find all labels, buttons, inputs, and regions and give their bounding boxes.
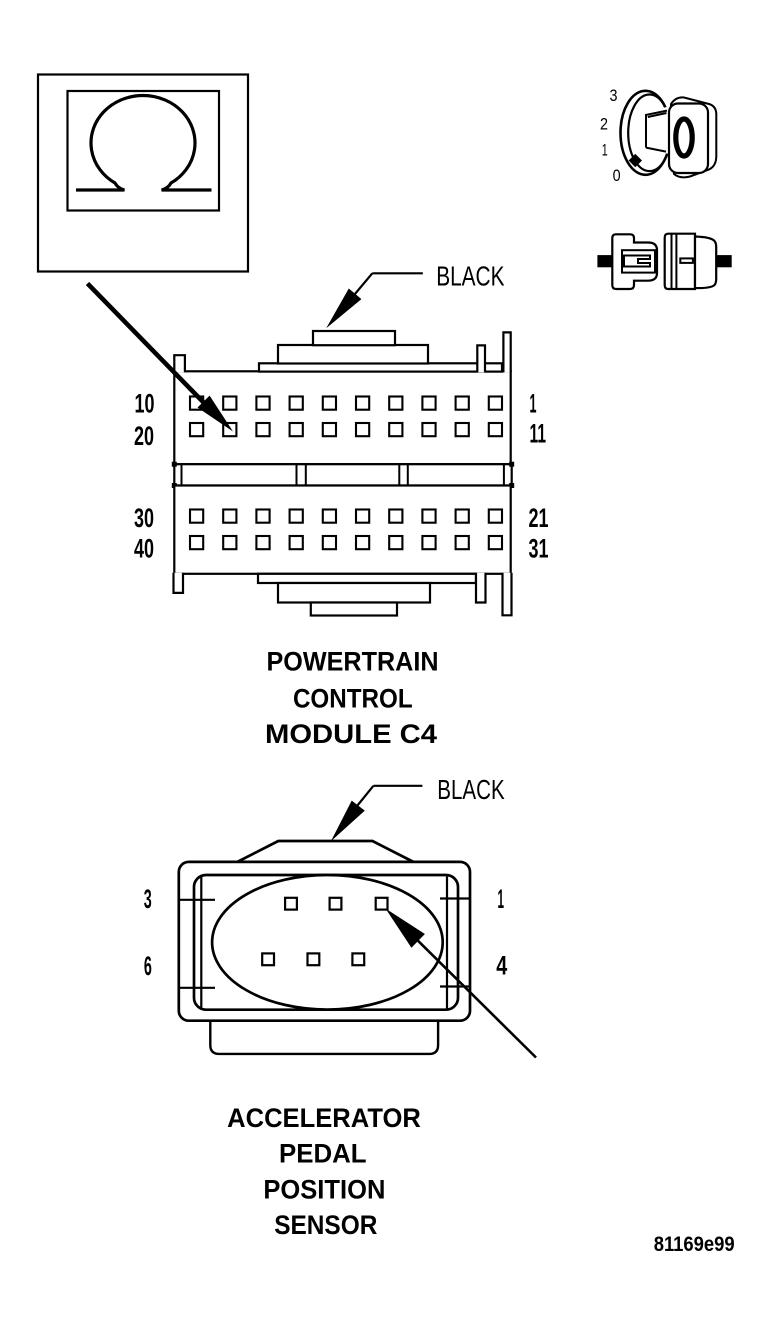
svg-text:11: 11 — [530, 419, 547, 449]
svg-text:40: 40 — [134, 534, 154, 564]
svg-text:81169e99: 81169e99 — [654, 1233, 735, 1256]
svg-text:ACCELERATOR: ACCELERATOR — [227, 1103, 421, 1133]
svg-text:SENSOR: SENSOR — [274, 1210, 377, 1240]
svg-text:30: 30 — [134, 503, 154, 533]
svg-text:6: 6 — [144, 951, 152, 981]
svg-text:POSITION: POSITION — [263, 1174, 385, 1204]
svg-text:1: 1 — [530, 388, 537, 418]
svg-text:3: 3 — [610, 86, 618, 105]
svg-text:31: 31 — [529, 534, 549, 564]
svg-text:1: 1 — [498, 884, 505, 914]
svg-text:1: 1 — [602, 141, 608, 160]
svg-text:3: 3 — [144, 884, 152, 914]
svg-text:21: 21 — [529, 503, 549, 533]
svg-text:POWERTRAIN: POWERTRAIN — [267, 646, 439, 676]
svg-text:MODULE C4: MODULE C4 — [265, 719, 437, 749]
svg-text:PEDAL: PEDAL — [279, 1139, 367, 1169]
svg-text:CONTROL: CONTROL — [293, 684, 413, 714]
svg-text:10: 10 — [135, 389, 155, 419]
svg-text:0: 0 — [613, 166, 621, 185]
svg-text:BLACK: BLACK — [436, 260, 505, 291]
svg-text:2: 2 — [600, 115, 608, 134]
svg-text:4: 4 — [496, 950, 507, 980]
svg-text:20: 20 — [134, 421, 154, 451]
svg-text:BLACK: BLACK — [437, 774, 505, 805]
